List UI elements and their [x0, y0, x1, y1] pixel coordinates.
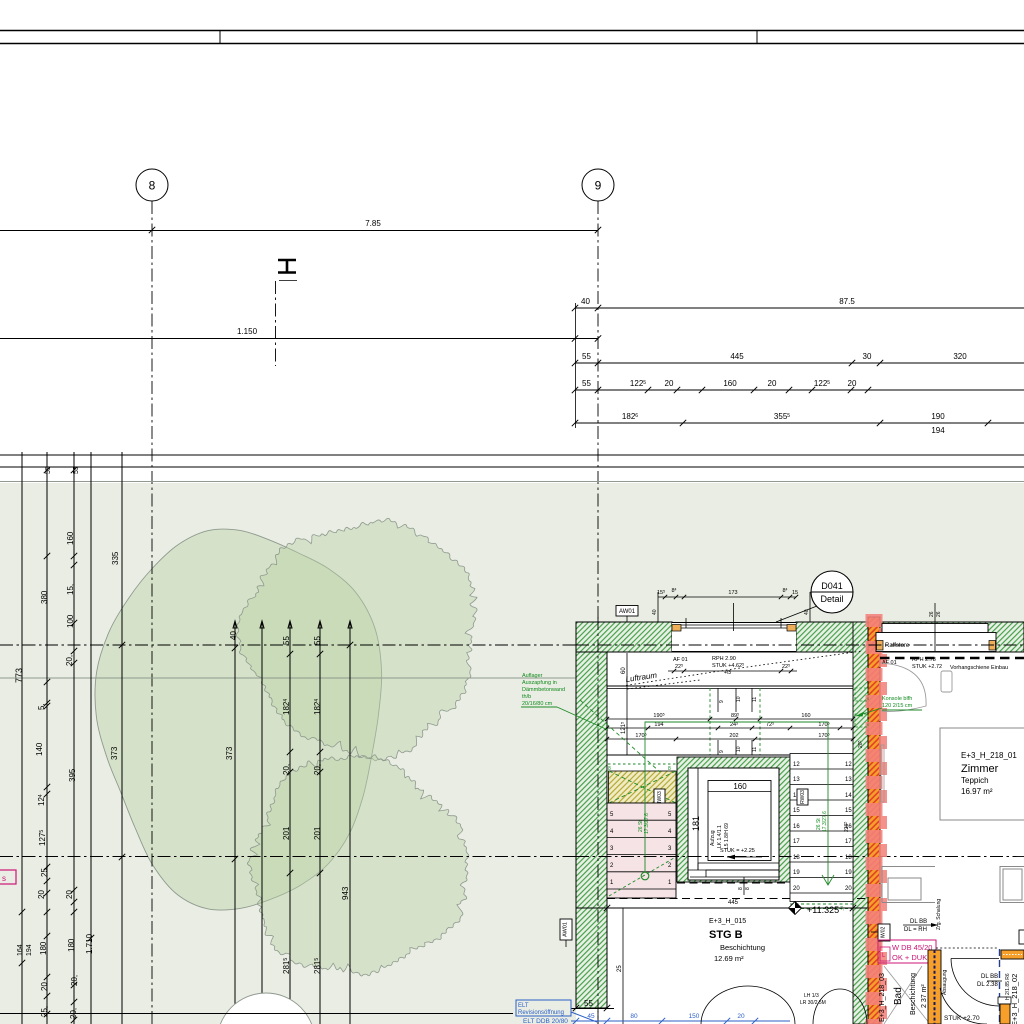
svg-text:201: 201: [313, 826, 322, 840]
svg-text:IW02: IW02: [881, 926, 887, 938]
svg-text:th/b: th/b: [522, 694, 531, 700]
svg-text:120 2/15 cm: 120 2/15 cm: [882, 703, 913, 709]
svg-text:12.69 m²: 12.69 m²: [714, 954, 744, 963]
svg-text:STUK +2.70: STUK +2.70: [944, 1015, 980, 1022]
svg-text:20: 20: [665, 379, 674, 388]
svg-text:E+3_H_218_03: E+3_H_218_03: [879, 973, 886, 1022]
svg-text:17: 17: [845, 839, 852, 845]
svg-text:11: 11: [752, 697, 758, 702]
svg-text:Auszapfung in: Auszapfung in: [522, 680, 557, 686]
svg-text:Absaugung: Absaugung: [942, 969, 948, 995]
svg-text:Zimmer: Zimmer: [961, 763, 999, 775]
svg-text:173: 173: [728, 590, 737, 596]
svg-text:ELT: ELT: [518, 1003, 529, 1009]
svg-text:Detail: Detail: [820, 594, 843, 604]
svg-text:19: 19: [845, 870, 852, 876]
svg-text:DL BB: DL BB: [981, 974, 998, 980]
svg-text:202: 202: [729, 733, 738, 739]
svg-text:DL = RH: DL = RH: [904, 927, 927, 933]
svg-text:18: 18: [845, 855, 852, 861]
svg-text:373: 373: [225, 746, 234, 760]
svg-text:RPH 2.90: RPH 2.90: [712, 656, 736, 662]
svg-text:25,: 25,: [40, 1006, 49, 1017]
svg-text:DL 2.38: DL 2.38: [977, 982, 998, 988]
svg-text:10: 10: [736, 696, 742, 702]
svg-text:30: 30: [863, 352, 872, 361]
svg-text:20,: 20,: [282, 764, 291, 775]
svg-text:Aufzug: Aufzug: [710, 830, 716, 846]
svg-text:13: 13: [845, 777, 852, 783]
svg-text:Revisionsöffnung: Revisionsöffnung: [518, 1010, 564, 1016]
svg-text:194: 194: [654, 722, 663, 728]
svg-text:2 37 m²: 2 37 m²: [921, 984, 928, 1008]
svg-text:25,: 25,: [40, 866, 49, 877]
svg-text:E+3_H_218_01: E+3_H_218_01: [961, 751, 1017, 760]
svg-text:80: 80: [630, 1013, 638, 1020]
svg-text:E+3_H_218_02: E+3_H_218_02: [1010, 974, 1019, 1024]
svg-text:160: 160: [733, 782, 747, 791]
svg-text:190: 190: [931, 412, 945, 421]
svg-text:E+3_H_015: E+3_H_015: [709, 918, 746, 925]
svg-text:18: 18: [793, 855, 800, 861]
svg-text:Konsole blfh: Konsole blfh: [882, 696, 912, 702]
svg-text:17.3/27.6: 17.3/27.6: [822, 811, 828, 832]
svg-text:160: 160: [801, 713, 810, 719]
svg-text:60: 60: [621, 667, 627, 674]
svg-text:DL BB: DL BB: [910, 919, 927, 925]
svg-text:45: 45: [587, 1013, 595, 1020]
svg-text:55: 55: [73, 466, 80, 474]
svg-text:15: 15: [793, 808, 800, 814]
svg-text:15: 15: [792, 590, 798, 596]
svg-text:26: 26: [936, 611, 942, 617]
svg-text:AF 01: AF 01: [673, 657, 688, 663]
svg-text:55: 55: [582, 352, 591, 361]
svg-text:20: 20: [793, 886, 800, 892]
svg-text:STUK +2.72: STUK +2.72: [912, 664, 942, 670]
svg-text:395: 395: [68, 768, 77, 782]
svg-text:14: 14: [845, 793, 852, 799]
svg-text:150: 150: [689, 1013, 700, 1020]
svg-text:Raffstore: Raffstore: [885, 643, 910, 649]
svg-text:20/16/80 cm: 20/16/80 cm: [522, 701, 553, 707]
svg-text:20: 20: [845, 886, 852, 892]
svg-text:10: 10: [736, 746, 742, 752]
svg-text:Beschichtung: Beschichtung: [720, 943, 765, 952]
svg-text:9: 9: [719, 750, 725, 753]
svg-text:Teppich: Teppich: [961, 776, 989, 785]
svg-text:8: 8: [149, 179, 156, 193]
svg-text:180: 180: [39, 941, 48, 955]
svg-text:773: 773: [14, 668, 24, 683]
svg-text:1.150: 1.150: [237, 327, 258, 336]
svg-text:160: 160: [723, 379, 737, 388]
svg-text:194: 194: [931, 426, 945, 435]
svg-text:5,: 5,: [37, 703, 46, 710]
svg-text:AW01: AW01: [619, 609, 636, 615]
svg-text:164: 164: [17, 944, 24, 956]
svg-text:11: 11: [752, 747, 758, 752]
svg-text:100: 100: [66, 614, 75, 628]
svg-text:26: 26: [929, 611, 935, 617]
svg-text:1.710: 1.710: [85, 933, 94, 954]
svg-text:20: 20: [848, 379, 857, 388]
svg-text:40: 40: [652, 609, 658, 615]
svg-text:55: 55: [582, 379, 591, 388]
svg-text:140: 140: [35, 742, 44, 756]
svg-text:IW03: IW03: [657, 791, 663, 803]
svg-text:320: 320: [953, 352, 967, 361]
svg-text:19: 19: [793, 870, 800, 876]
svg-text:87.5: 87.5: [839, 297, 855, 306]
svg-text:W DB 45/20: W DB 45/20: [892, 943, 932, 952]
svg-text:15,: 15,: [66, 584, 75, 595]
svg-text:8: 8: [738, 887, 744, 890]
svg-text:20: 20: [37, 890, 46, 899]
svg-text:16.97 m²: 16.97 m²: [961, 787, 993, 796]
svg-text:D041: D041: [821, 581, 843, 591]
svg-text:AW01: AW01: [563, 922, 569, 937]
svg-text:s: s: [2, 874, 6, 883]
svg-text:Beschichtung: Beschichtung: [910, 973, 917, 1015]
svg-text:Vorhangschiene Einbau: Vorhangschiene Einbau: [950, 665, 1008, 671]
svg-text:201: 201: [282, 826, 291, 840]
svg-text:15: 15: [845, 808, 852, 814]
svg-text:7.85: 7.85: [365, 219, 381, 228]
svg-text:40: 40: [581, 297, 590, 306]
svg-text:335: 335: [111, 551, 120, 565]
svg-text:943: 943: [341, 886, 350, 900]
svg-text:55: 55: [45, 466, 52, 474]
svg-text:Auflager: Auflager: [522, 673, 543, 679]
svg-text:180: 180: [67, 938, 76, 952]
svg-text:40: 40: [229, 631, 238, 640]
svg-text:373: 373: [110, 746, 119, 760]
svg-text:+11.325: +11.325: [807, 905, 839, 915]
svg-text:16: 16: [793, 824, 800, 830]
svg-text:LK 1.4/1.1: LK 1.4/1.1: [717, 825, 723, 848]
svg-text:7,: 7,: [840, 906, 844, 912]
svg-text:LH 1/3: LH 1/3: [804, 993, 819, 999]
svg-text:55: 55: [313, 636, 322, 645]
svg-text:Bad: Bad: [893, 987, 904, 1005]
svg-text:9: 9: [595, 179, 602, 193]
svg-text:445: 445: [728, 900, 739, 906]
svg-text:20: 20: [40, 982, 49, 991]
svg-text:17: 17: [793, 839, 800, 845]
svg-text:OK + DUK: OK + DUK: [892, 953, 927, 962]
svg-text:9: 9: [719, 700, 725, 703]
svg-text:20: 20: [768, 379, 777, 388]
svg-text:ELT DDB 20/80: ELT DDB 20/80: [523, 1018, 568, 1024]
svg-text:Dämmbetonwand: Dämmbetonwand: [522, 687, 565, 693]
svg-text:8: 8: [745, 887, 751, 890]
svg-text:20: 20: [737, 1013, 745, 1020]
svg-text:194: 194: [26, 944, 33, 956]
svg-text:380: 380: [40, 590, 49, 604]
svg-text:L5 1.8/H 69: L5 1.8/H 69: [724, 823, 730, 849]
svg-text:160: 160: [66, 531, 75, 545]
svg-text:LR 30/2.5M: LR 30/2.5M: [800, 1000, 826, 1006]
svg-text:RPH 2.78: RPH 2.78: [912, 657, 936, 663]
svg-text:13: 13: [793, 777, 800, 783]
svg-text:12: 12: [793, 762, 800, 768]
svg-text:STUK +4.625: STUK +4.625: [712, 663, 744, 670]
svg-text:55: 55: [282, 636, 291, 645]
svg-text:20,: 20,: [65, 655, 74, 666]
svg-text:20,: 20,: [70, 975, 79, 986]
svg-text:STG B: STG B: [709, 929, 743, 941]
svg-text:RW03: RW03: [800, 790, 806, 804]
svg-text:445: 445: [730, 352, 744, 361]
svg-text:Zrg. Schalung: Zrg. Schalung: [936, 899, 942, 930]
svg-text:STUK = +2.25: STUK = +2.25: [720, 848, 755, 854]
svg-text:181: 181: [691, 816, 701, 831]
svg-text:25: 25: [617, 965, 623, 972]
svg-text:12: 12: [845, 762, 852, 768]
svg-text:20,: 20,: [313, 764, 322, 775]
svg-text:20: 20: [65, 890, 74, 899]
svg-text:55: 55: [584, 999, 593, 1008]
